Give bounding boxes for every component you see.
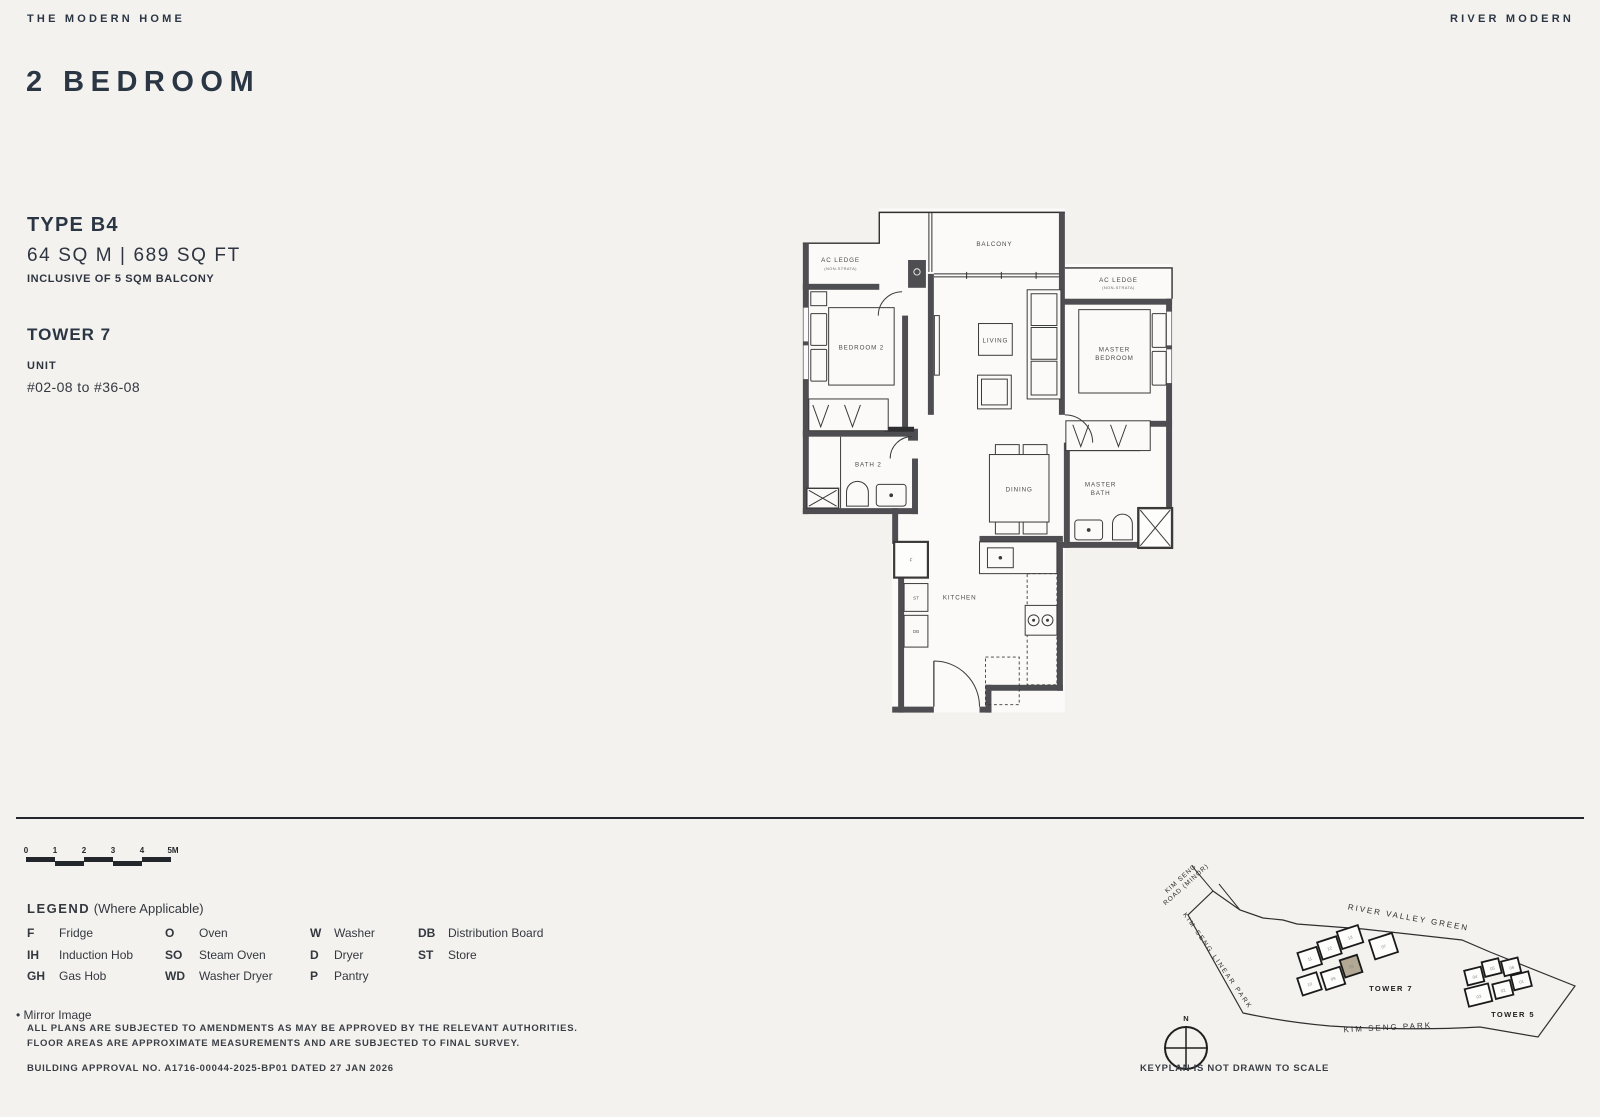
floorplan-svg: BALCONY AC LEDGE (NON-STRATA) AC LEDGE (… <box>783 203 1180 717</box>
legend-label: Steam Oven <box>199 949 266 962</box>
legend-abbr: P <box>310 970 334 983</box>
legend-label: Washer <box>334 927 375 940</box>
legend-label: Oven <box>199 927 228 940</box>
keyplan-svg: KIM SENG ROAD (MINOR) KIM SENG LINEAR PA… <box>1130 830 1600 1090</box>
kim-seng-road-label: KIM SENG ROAD (MINOR) <box>1157 857 1211 907</box>
section-divider <box>16 817 1584 819</box>
floorplan-brochure-page: { "header": { "brand": "THE MODERN HOME"… <box>0 0 1600 1117</box>
legend-label: Pantry <box>334 970 369 983</box>
legend-label: Dryer <box>334 949 363 962</box>
unit-area: 64 SQ M | 689 SQ FT <box>27 245 241 267</box>
tower-label: TOWER 7 <box>27 325 111 345</box>
legend-item: DBDistribution Board <box>418 927 543 940</box>
db-label: DB <box>913 629 919 634</box>
legend-item: STStore <box>418 949 543 962</box>
living-label: LIVING <box>982 337 1008 344</box>
project-title: RIVER MODERN <box>1450 13 1574 25</box>
legend-abbr: GH <box>27 970 59 983</box>
ac-ledge-right-label: AC LEDGE <box>1099 277 1138 284</box>
balcony-note: INCLUSIVE OF 5 SQM BALCONY <box>27 273 214 285</box>
store-label: ST <box>913 595 919 600</box>
bullet-icon: • <box>16 1008 24 1022</box>
unit-range: #02-08 to #36-08 <box>27 379 140 395</box>
legend-abbr: IH <box>27 949 59 962</box>
tower7-label: TOWER 7 <box>1369 984 1413 993</box>
legend-label: Distribution Board <box>448 927 543 940</box>
legend-label: Induction Hob <box>59 949 133 962</box>
legend-label: Washer Dryer <box>199 970 273 983</box>
legend-subtitle: (Where Applicable) <box>94 901 204 916</box>
legend-heading: LEGEND (Where Applicable) <box>27 901 204 916</box>
ac-ledge-right-sub: (NON-STRATA) <box>1102 285 1135 290</box>
fridge-label: F <box>910 558 913 563</box>
disclaimer-line-1: ALL PLANS ARE SUBJECTED TO AMENDMENTS AS… <box>27 1021 727 1036</box>
legend-item: WDWasher Dryer <box>165 970 273 983</box>
scale-tick-1: 1 <box>53 846 58 855</box>
scale-bar: 0 1 2 3 4 5M <box>22 844 202 872</box>
tower5-label: TOWER 5 <box>1491 1010 1535 1019</box>
scale-tick-4: 4 <box>140 846 145 855</box>
mirror-image-note: • Mirror Image <box>16 1008 92 1022</box>
legend-item: IHInduction Hob <box>27 949 133 962</box>
disclaimer: ALL PLANS ARE SUBJECTED TO AMENDMENTS AS… <box>27 1021 727 1051</box>
bedroom2-label: BEDROOM 2 <box>839 344 885 351</box>
scale-bar-segments <box>26 857 171 866</box>
legend-column-1: FFridge IHInduction Hob GHGas Hob <box>27 927 133 992</box>
legend-item: DDryer <box>310 949 375 962</box>
legend-column-2: OOven SOSteam Oven WDWasher Dryer <box>165 927 273 992</box>
brand-title: THE MODERN HOME <box>27 13 185 25</box>
balcony-label: BALCONY <box>976 241 1012 248</box>
legend-abbr: O <box>165 927 199 940</box>
dining-label: DINING <box>1006 486 1033 493</box>
legend-abbr: D <box>310 949 334 962</box>
legend-item: GHGas Hob <box>27 970 133 983</box>
disclaimer-line-2: FLOOR AREAS ARE APPROXIMATE MEASUREMENTS… <box>27 1036 727 1051</box>
legend-abbr: SO <box>165 949 199 962</box>
legend-abbr: ST <box>418 949 448 962</box>
master-bath-label-2: BATH <box>1091 490 1111 497</box>
river-valley-green-label: RIVER VALLEY GREEN <box>1347 902 1470 932</box>
legend-title: LEGEND <box>27 901 90 916</box>
ac-ledge-label: AC LEDGE <box>821 257 860 264</box>
legend-item: OOven <box>165 927 273 940</box>
scale-tick-2: 2 <box>82 846 87 855</box>
legend-item: WWasher <box>310 927 375 940</box>
mirror-image-text: Mirror Image <box>24 1008 92 1022</box>
legend-column-3: WWasher DDryer PPantry <box>310 927 375 992</box>
scale-tick-0: 0 <box>24 846 29 855</box>
building-approval: BUILDING APPROVAL NO. A1716-00044-2025-B… <box>27 1061 394 1076</box>
legend-label: Gas Hob <box>59 970 106 983</box>
legend-column-4: DBDistribution Board STStore <box>418 927 543 970</box>
tower5-cluster: 04 05 06 03 02 01 <box>1459 952 1533 1007</box>
master-bedroom-label-2: BEDROOM <box>1095 355 1134 362</box>
legend-label: Fridge <box>59 927 93 940</box>
kim-seng-park-label: KIM SENG PARK <box>1343 1021 1432 1035</box>
legend-abbr: W <box>310 927 334 940</box>
linear-park-label: KIM SENG LINEAR PARK <box>1181 912 1253 1011</box>
unit-type: TYPE B4 <box>27 214 119 237</box>
scale-tick-3: 3 <box>111 846 116 855</box>
ac-ledge-sub: (NON-STRATA) <box>824 266 857 271</box>
bath2-label: BATH 2 <box>855 461 882 468</box>
compass-n-label: N <box>1183 1014 1188 1023</box>
kitchen-label: KITCHEN <box>943 594 977 601</box>
scale-tick-5: 5M <box>167 846 178 855</box>
legend-abbr: DB <box>418 927 448 940</box>
page-title: 2 BEDROOM <box>26 66 260 99</box>
legend-abbr: F <box>27 927 59 940</box>
legend-item: PPantry <box>310 970 375 983</box>
keyplan-note: KEYPLAN IS NOT DRAWN TO SCALE <box>1140 1061 1329 1076</box>
legend-item: SOSteam Oven <box>165 949 273 962</box>
legend-label: Store <box>448 949 477 962</box>
legend-abbr: WD <box>165 970 199 983</box>
master-bath-label-1: MASTER <box>1085 481 1116 488</box>
master-bedroom-label-1: MASTER <box>1099 346 1130 353</box>
unit-label: UNIT <box>27 360 57 372</box>
legend-item: FFridge <box>27 927 133 940</box>
